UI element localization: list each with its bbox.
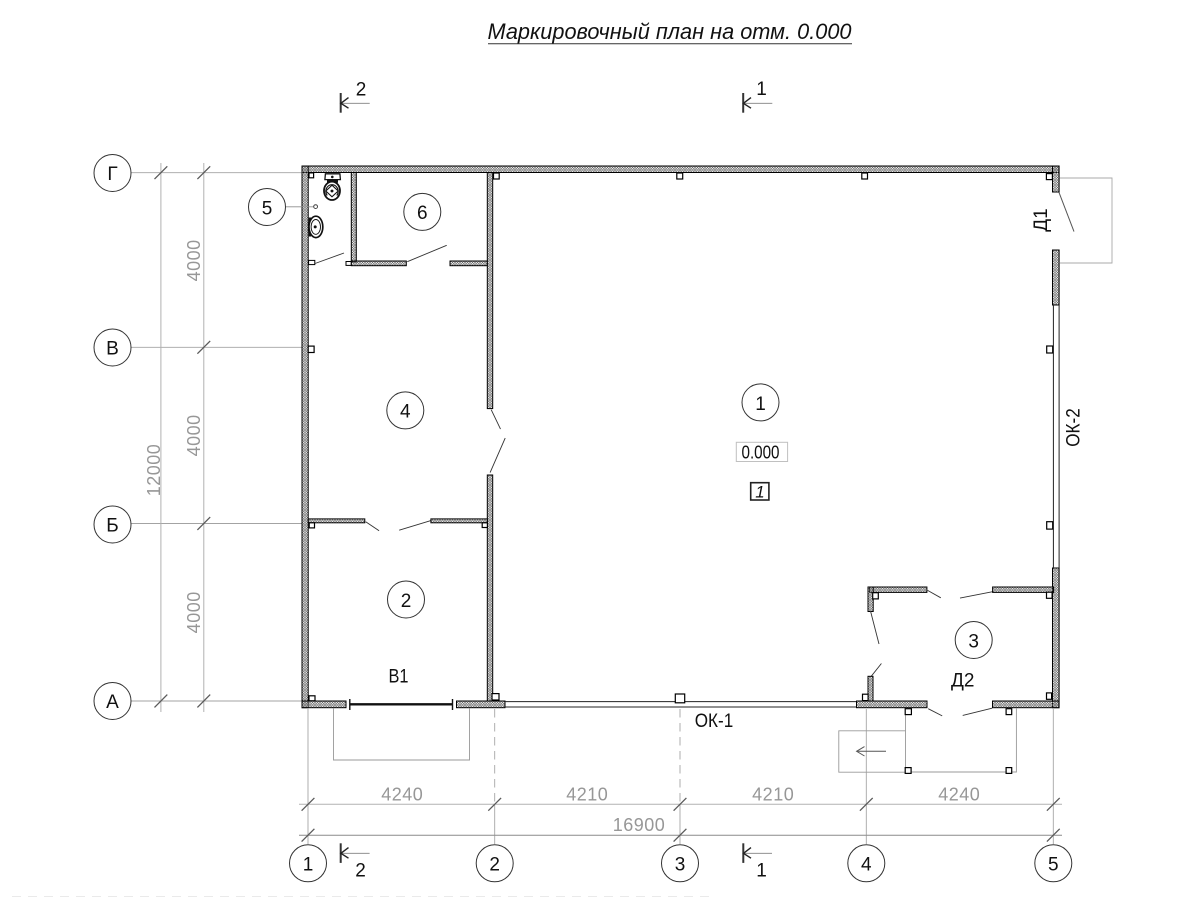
svg-text:3: 3 [968,631,979,652]
svg-text:0.000: 0.000 [742,442,780,462]
svg-text:2: 2 [356,80,367,101]
svg-text:Маркировочный план на отм. 0.0: Маркировочный план на отм. 0.000 [488,19,853,44]
svg-text:2: 2 [355,861,366,882]
svg-text:2: 2 [401,591,412,612]
svg-text:1: 1 [756,79,767,100]
svg-text:5: 5 [262,198,273,219]
svg-text:1: 1 [755,482,764,501]
svg-text:4000: 4000 [184,591,204,633]
svg-text:1: 1 [756,861,767,882]
svg-text:4210: 4210 [566,784,608,804]
svg-text:В1: В1 [389,667,409,688]
svg-text:ОК-1: ОК-1 [695,710,734,732]
svg-text:А: А [106,692,119,713]
svg-text:4000: 4000 [184,239,204,281]
svg-text:1: 1 [755,394,766,415]
svg-text:В: В [106,339,119,360]
svg-text:5: 5 [1048,855,1059,876]
svg-text:4: 4 [861,855,872,876]
svg-text:4210: 4210 [752,784,794,804]
svg-text:12000: 12000 [144,444,164,497]
svg-text:Б: Б [106,516,118,537]
svg-text:16900: 16900 [613,815,666,835]
svg-text:3: 3 [675,855,686,876]
svg-text:4240: 4240 [381,784,423,804]
svg-text:1: 1 [303,855,314,876]
svg-text:2: 2 [489,855,500,876]
svg-text:Д2: Д2 [951,670,974,691]
svg-text:6: 6 [417,203,428,224]
svg-text:ОК-2: ОК-2 [1063,408,1085,447]
svg-text:4: 4 [400,402,411,423]
svg-text:4000: 4000 [184,414,204,456]
svg-text:Д1: Д1 [1031,208,1052,231]
svg-text:4240: 4240 [938,784,980,804]
svg-text:Г: Г [107,164,117,185]
